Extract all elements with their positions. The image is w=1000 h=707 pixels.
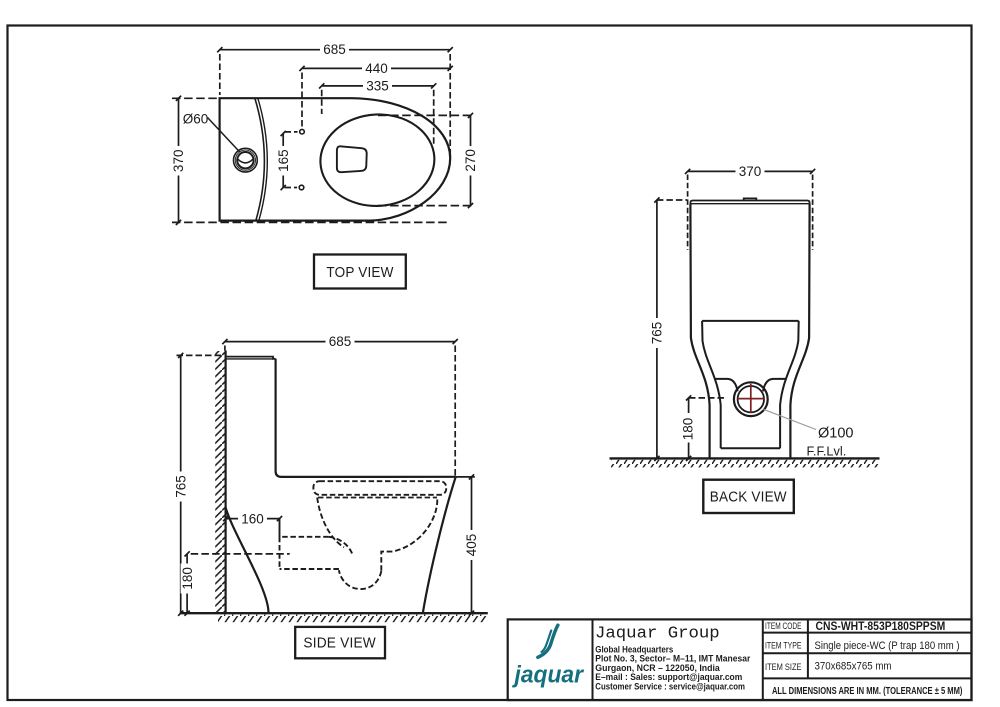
svg-text:ITEM TYPE: ITEM TYPE (765, 640, 802, 650)
svg-text:BACK VIEW: BACK VIEW (710, 489, 788, 506)
svg-text:765: 765 (173, 475, 188, 498)
svg-text:ITEM CODE: ITEM CODE (765, 621, 802, 631)
svg-text:370: 370 (171, 150, 186, 173)
svg-text:Ø60: Ø60 (183, 111, 209, 126)
svg-text:jaquar: jaquar (512, 662, 585, 689)
svg-text:765: 765 (650, 322, 665, 345)
svg-text:Ø100: Ø100 (818, 425, 853, 441)
svg-text:440: 440 (365, 61, 388, 76)
svg-text:165: 165 (276, 149, 291, 172)
svg-text:Customer Service : service@jaq: Customer Service : service@jaquar.com (595, 681, 745, 691)
svg-text:ALL DIMENSIONS ARE IN MM. (TOL: ALL DIMENSIONS ARE IN MM. (TOLERANCE ± 5… (772, 686, 963, 697)
svg-text:685: 685 (329, 334, 352, 349)
svg-text:405: 405 (464, 534, 479, 557)
svg-text:ITEM SIZE: ITEM SIZE (765, 662, 802, 672)
svg-text:F.F.Lvl.: F.F.Lvl. (807, 444, 847, 459)
svg-text:Single piece-WC (P trap 180 mm: Single piece-WC (P trap 180 mm ) (815, 640, 960, 652)
svg-text:370: 370 (739, 164, 762, 179)
svg-text:160: 160 (241, 511, 264, 526)
svg-text:TOP VIEW: TOP VIEW (326, 264, 394, 281)
svg-text:180: 180 (681, 418, 696, 441)
svg-text:270: 270 (463, 149, 478, 172)
svg-text:SIDE VIEW: SIDE VIEW (303, 635, 376, 652)
svg-text:335: 335 (366, 78, 389, 93)
svg-text:180: 180 (180, 567, 195, 590)
svg-text:Jaquar Group: Jaquar Group (595, 624, 720, 643)
svg-text:370x685x765 mm: 370x685x765 mm (815, 661, 892, 673)
svg-text:685: 685 (323, 42, 346, 57)
svg-text:CNS-WHT-853P180SPPSM: CNS-WHT-853P180SPPSM (816, 621, 946, 633)
